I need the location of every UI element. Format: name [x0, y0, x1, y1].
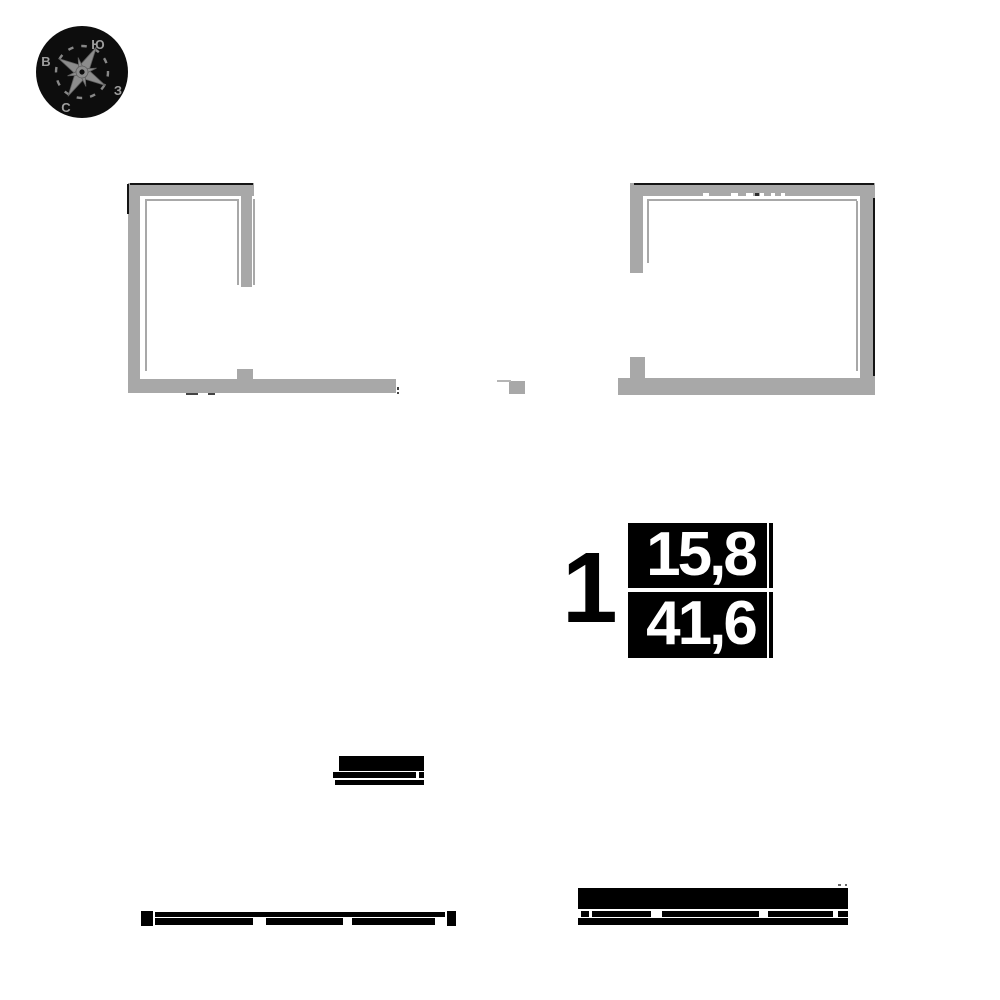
bottom-left-segment [266, 918, 343, 925]
window-tick [771, 193, 775, 196]
bottom-right-segment [592, 911, 651, 917]
left-room-top-wall-edge [130, 183, 253, 185]
left-room-mark [208, 393, 215, 395]
left-room-left-wall-edge [127, 184, 129, 214]
compass-letter-east: В [41, 54, 50, 69]
right-room-inner-line-left [647, 201, 649, 263]
bottom-right-segment [768, 911, 833, 917]
bottom-left-segment [352, 918, 435, 925]
mid-bar-notch [416, 772, 419, 778]
bottom-right-bottom-line [578, 918, 848, 925]
left-room-partition-line-right [253, 199, 255, 285]
left-room-mark [397, 392, 399, 394]
right-room-top-wall-edge [634, 183, 874, 185]
right-room-left-stub [630, 357, 645, 378]
bottom-left-segment [155, 918, 253, 925]
compass-letter-south: Ю [91, 37, 104, 52]
area-box-right-line [767, 523, 769, 658]
right-room-bottom-wall [618, 378, 875, 395]
mid-bar-thin [333, 772, 424, 778]
unit-number: 1 [562, 538, 616, 638]
bottom-right-thick-bar [578, 888, 848, 909]
area-boxes: 15,8 41,6 [628, 523, 773, 658]
left-room-inner-line-top [145, 199, 237, 201]
left-room-mark [186, 393, 198, 395]
mid-bar-thick [339, 756, 424, 771]
left-room-bottom-wall [128, 379, 396, 393]
area-box-top: 15,8 [628, 523, 773, 588]
right-room-inner-line-top [647, 199, 857, 201]
compass-icon: Ю В З С [34, 24, 130, 120]
left-room-partition-line-left [237, 199, 239, 285]
window-tick [731, 193, 738, 196]
bottom-left-top-line [155, 912, 445, 917]
left-room-mark [397, 387, 399, 390]
area-box-bottom: 41,6 [628, 592, 773, 658]
bottom-right-segment [581, 911, 589, 917]
bottom-right-dot [838, 884, 841, 886]
bottom-right-segment [838, 911, 848, 917]
area-value-bottom: 41,6 [646, 592, 755, 658]
window-tick [703, 193, 709, 196]
wall-fragment-line [497, 380, 511, 382]
area-value-top: 15,8 [646, 523, 755, 588]
floor-plan-page: Ю В З С 1 15,8 41,6 [0, 0, 1000, 1000]
left-room-door-stub [237, 369, 253, 379]
left-room-inner-line-left [145, 201, 147, 371]
right-room-right-wall-edge [873, 198, 875, 376]
window-tick [746, 193, 753, 196]
bottom-right-dot [845, 884, 847, 886]
compass-letter-north: С [61, 100, 71, 115]
window-tick [781, 193, 785, 196]
left-room-left-wall [128, 196, 140, 392]
right-room-left-wall [630, 196, 643, 273]
mid-bar-thin [335, 780, 424, 785]
compass-letter-west: З [114, 83, 122, 98]
compass-rose: Ю В З С [34, 24, 130, 120]
right-room-inner-line-right [856, 201, 858, 371]
bottom-left-end-block [447, 911, 456, 926]
bottom-left-end-block [141, 911, 153, 926]
wall-fragment-block [509, 381, 525, 394]
bottom-right-segment [662, 911, 759, 917]
unit-card[interactable]: 1 15,8 41,6 [560, 521, 776, 661]
window-tick-dark [755, 193, 759, 196]
left-room-partition-wall [241, 196, 252, 287]
window-tick [760, 193, 764, 196]
